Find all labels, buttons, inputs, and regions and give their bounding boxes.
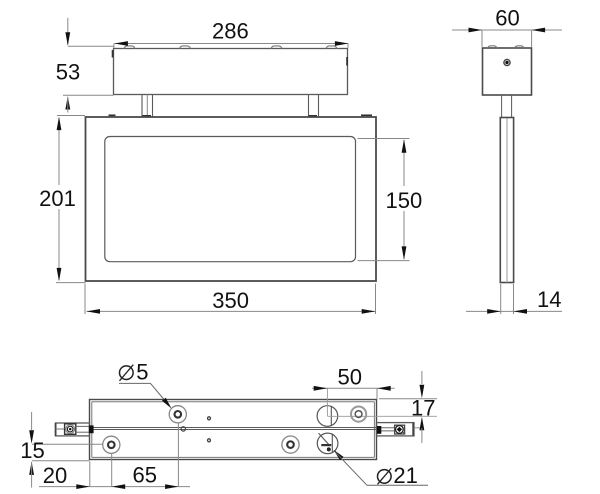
svg-text:60: 60 <box>495 6 519 31</box>
svg-text:5: 5 <box>136 360 148 385</box>
svg-text:350: 350 <box>212 288 249 313</box>
svg-text:15: 15 <box>20 438 44 463</box>
svg-text:201: 201 <box>39 186 76 211</box>
svg-text:65: 65 <box>132 463 156 488</box>
svg-text:50: 50 <box>338 365 362 390</box>
svg-text:17: 17 <box>411 395 435 420</box>
svg-text:14: 14 <box>537 287 561 312</box>
svg-text:20: 20 <box>43 463 67 488</box>
svg-text:21: 21 <box>393 463 417 488</box>
svg-text:286: 286 <box>212 18 249 43</box>
svg-text:150: 150 <box>386 188 423 213</box>
svg-text:53: 53 <box>56 59 80 84</box>
